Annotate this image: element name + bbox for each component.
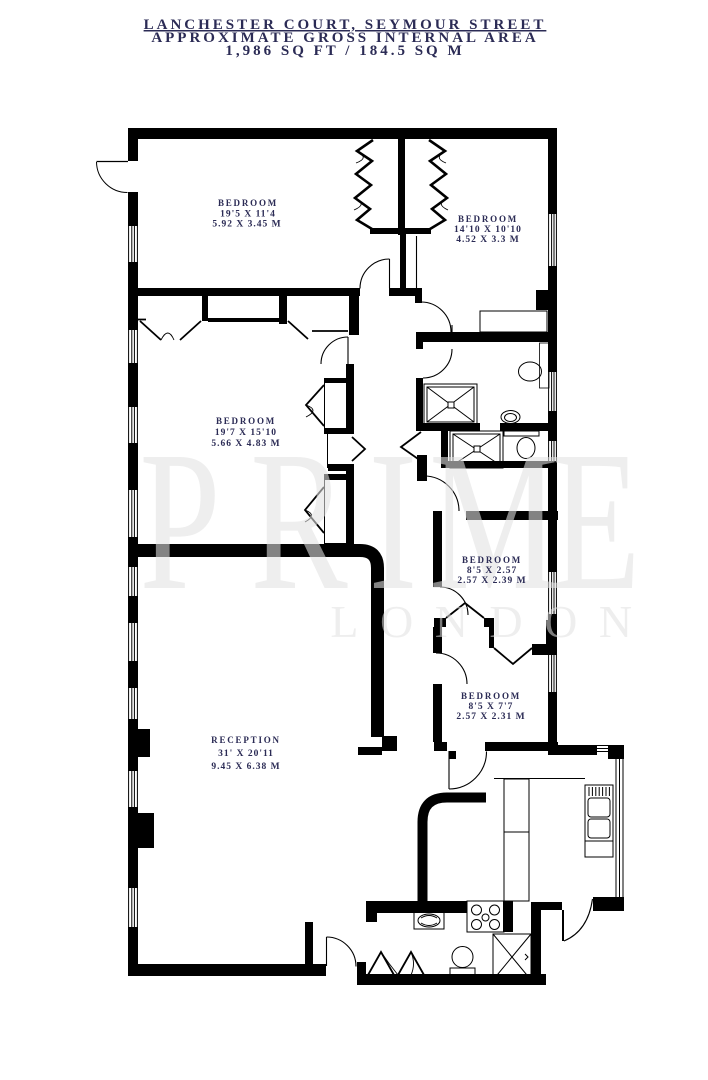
svg-text:8'5 X 7'7: 8'5 X 7'7 — [469, 702, 514, 712]
svg-text:2.57 X 2.39 M: 2.57 X 2.39 M — [457, 576, 526, 586]
svg-text:P: P — [139, 410, 220, 632]
svg-text:4.52 X 3.3 M: 4.52 X 3.3 M — [456, 235, 519, 245]
svg-text:31' X 20'11: 31' X 20'11 — [218, 749, 274, 759]
svg-text:2.57 X 2.31 M: 2.57 X 2.31 M — [456, 712, 525, 722]
svg-text:5.66 X 4.83 M: 5.66 X 4.83 M — [211, 439, 280, 449]
svg-text:8'5 X 2.57: 8'5 X 2.57 — [467, 566, 517, 576]
svg-text:19'5 X 11'4: 19'5 X 11'4 — [220, 210, 276, 220]
svg-text:9.45 X 6.38 M: 9.45 X 6.38 M — [211, 762, 280, 772]
svg-text:1,986 SQ FT / 184.5 SQ M: 1,986 SQ FT / 184.5 SQ M — [225, 43, 464, 59]
svg-text:BEDROOM: BEDROOM — [462, 555, 522, 565]
svg-text:14'10 X 10'10: 14'10 X 10'10 — [454, 225, 522, 235]
svg-text:BEDROOM: BEDROOM — [458, 214, 518, 224]
svg-text:BEDROOM: BEDROOM — [216, 416, 276, 426]
svg-text:RECEPTION: RECEPTION — [211, 735, 281, 745]
svg-text:BEDROOM: BEDROOM — [218, 198, 278, 208]
svg-text:BEDROOM: BEDROOM — [461, 691, 521, 701]
svg-text:LONDON: LONDON — [330, 596, 653, 647]
svg-text:19'7 X 15'10: 19'7 X 15'10 — [215, 428, 277, 438]
svg-text:5.92 X 3.45 M: 5.92 X 3.45 M — [212, 220, 281, 230]
